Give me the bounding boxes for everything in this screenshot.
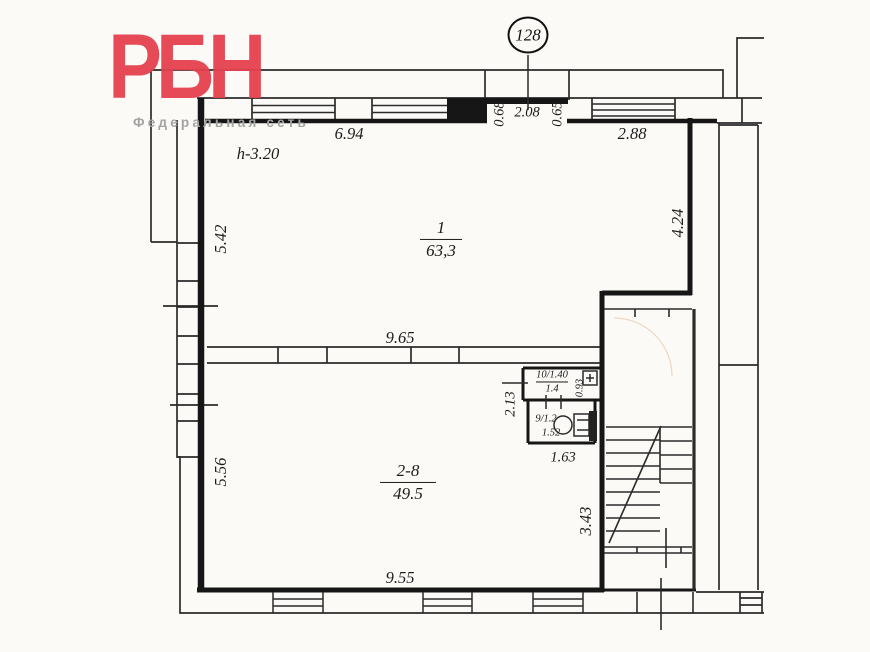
- room-10-area: 1.4: [545, 384, 558, 395]
- room-9-area: 1.52: [542, 428, 560, 439]
- dim-wc-bottom: 1.63: [550, 450, 575, 467]
- bottom-wall-band: [273, 592, 583, 613]
- stairwell: [604, 309, 694, 630]
- vent-plus-icon: [586, 374, 594, 382]
- dim-entry-width: 2.08: [514, 105, 539, 122]
- fraction-line: [536, 382, 568, 383]
- dim-bottom-run: 9.55: [386, 568, 415, 588]
- ceiling-height-label: h-3.20: [237, 144, 280, 164]
- dim-entry-left: 0.68: [492, 101, 509, 126]
- room-2-8-number: 2-8: [397, 461, 420, 481]
- floor-plan-sheet: РБН Федеральная сеть 128 6.94 h-3.20 0.6…: [0, 0, 870, 652]
- duct-shaft: [589, 411, 597, 441]
- room-9-number: 9/1.2: [535, 414, 556, 425]
- stair-direction-line: [609, 426, 661, 543]
- room-10-number: 10/1.40: [536, 369, 568, 380]
- stair-treads-left: [606, 427, 660, 531]
- room-2-8-label: 2-8 49.5: [380, 461, 436, 503]
- room-10-label: 10/1.40 1.4: [536, 369, 568, 394]
- neighbour-structure: [696, 123, 764, 613]
- rbn-logo: РБН Федеральная сеть: [108, 24, 309, 130]
- dim-wc-left: 2.13: [503, 391, 520, 416]
- fraction-line: [380, 482, 436, 483]
- dim-right-wall: 4.24: [668, 209, 688, 238]
- wall-pier-filled: [447, 98, 487, 123]
- dim-left-upper: 5.42: [211, 225, 231, 254]
- dim-entry-right: 0.65: [550, 101, 567, 126]
- door-marks: [661, 528, 666, 630]
- stair-treads-right: [660, 427, 692, 483]
- dim-partition: 9.65: [386, 328, 415, 348]
- room-1-label: 1 63,3: [420, 218, 462, 260]
- dim-top-run: 6.94: [335, 124, 364, 144]
- door-swing-arc: [614, 318, 672, 376]
- dim-lower-right: 3.43: [576, 507, 596, 536]
- room-2-8-area: 49.5: [393, 484, 423, 504]
- dim-wc-shaft: 0.93: [575, 379, 586, 397]
- dim-top-right-run: 2.88: [618, 124, 647, 144]
- room-1-number: 1: [437, 218, 446, 238]
- dim-left-lower: 5.56: [211, 458, 231, 487]
- room-1-area: 63,3: [426, 241, 456, 261]
- plan-number-badge: 128: [508, 17, 549, 54]
- plan-number: 128: [515, 25, 541, 45]
- fraction-line: [420, 239, 462, 240]
- logo-brand-text: РБН: [108, 24, 285, 111]
- partition-wall: [207, 347, 600, 363]
